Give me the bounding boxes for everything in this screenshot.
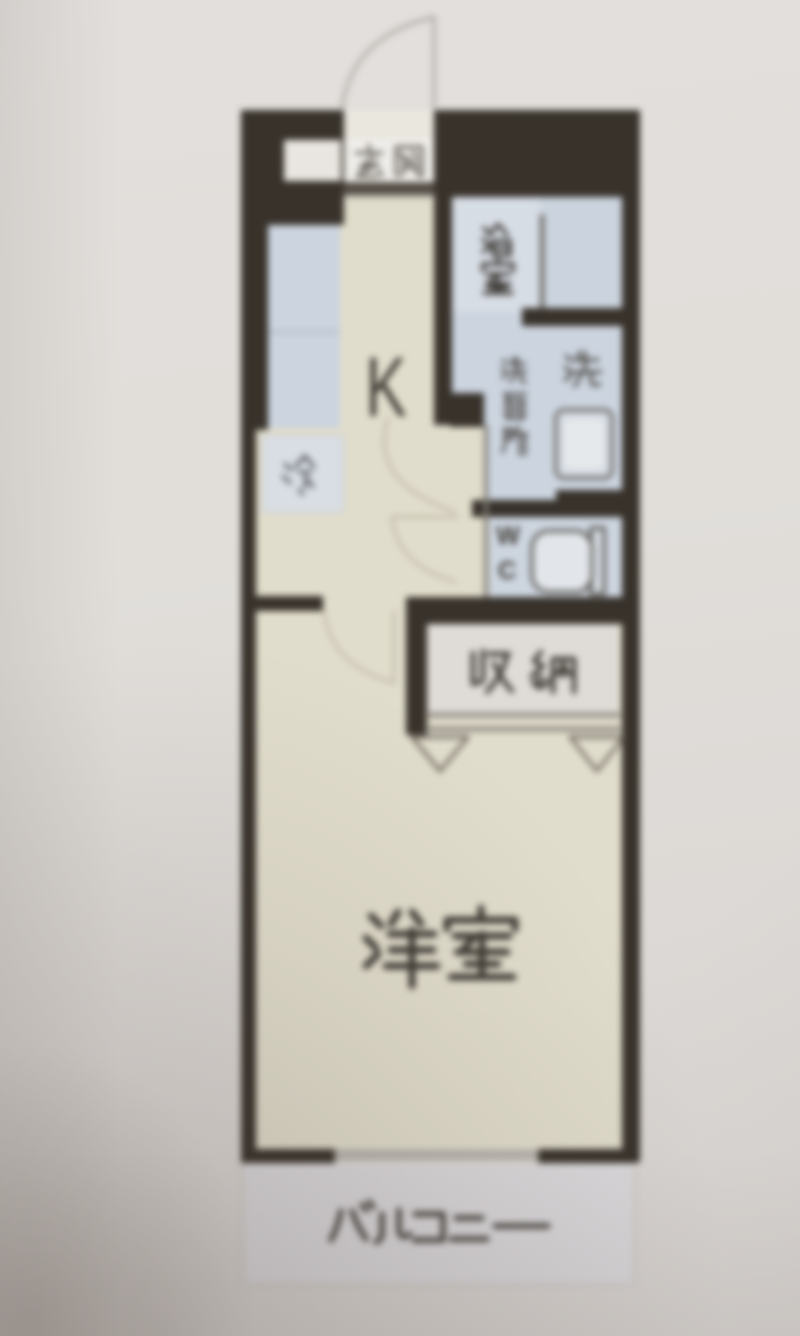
svg-text:K: K [365,340,406,434]
svg-text:C: C [498,557,516,585]
svg-text:W: W [496,522,520,550]
